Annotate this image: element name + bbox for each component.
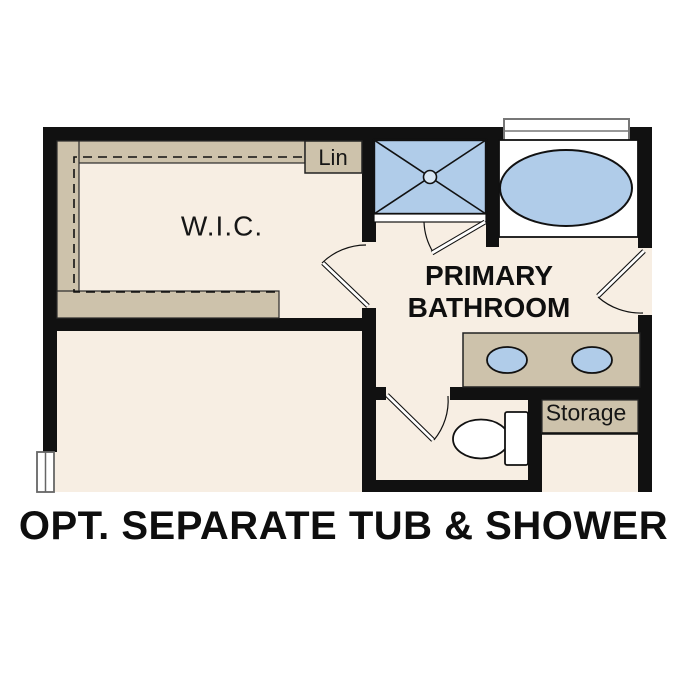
double-vanity-icon [463, 333, 640, 387]
room-label-storage: Storage [546, 400, 627, 425]
wall-under-vanity [450, 387, 652, 400]
floor-plan-drawing [0, 0, 687, 687]
shower-curb [374, 214, 486, 222]
wall-toilet-bottom [363, 480, 542, 492]
room-label-linen: Lin [318, 146, 347, 170]
bathtub-icon [499, 140, 638, 237]
wall-left [43, 127, 57, 452]
wall-tub-left [486, 127, 499, 247]
window-icon [37, 452, 54, 492]
window-icon [504, 119, 629, 141]
sink-icon [487, 347, 527, 373]
shower-icon [374, 140, 486, 222]
plan-caption: OPT. SEPARATE TUB & SHOWER [0, 504, 687, 549]
wall-mid-lower [362, 308, 376, 492]
floor-plan-image: W.I.C. Lin PRIMARY BATHROOM Storage OPT.… [0, 0, 687, 687]
shelf-bottom [57, 291, 279, 318]
sink-icon [572, 347, 612, 373]
room-label-primary-bathroom: PRIMARY BATHROOM [374, 260, 604, 324]
shelf-top [57, 141, 305, 163]
room-label-wic: W.I.C. [181, 212, 263, 243]
wall-toilet-door-stub [376, 387, 386, 400]
wall-toilet-right [528, 395, 542, 492]
wall-wic-bottom [43, 318, 375, 331]
wall-right-upper [638, 127, 652, 248]
